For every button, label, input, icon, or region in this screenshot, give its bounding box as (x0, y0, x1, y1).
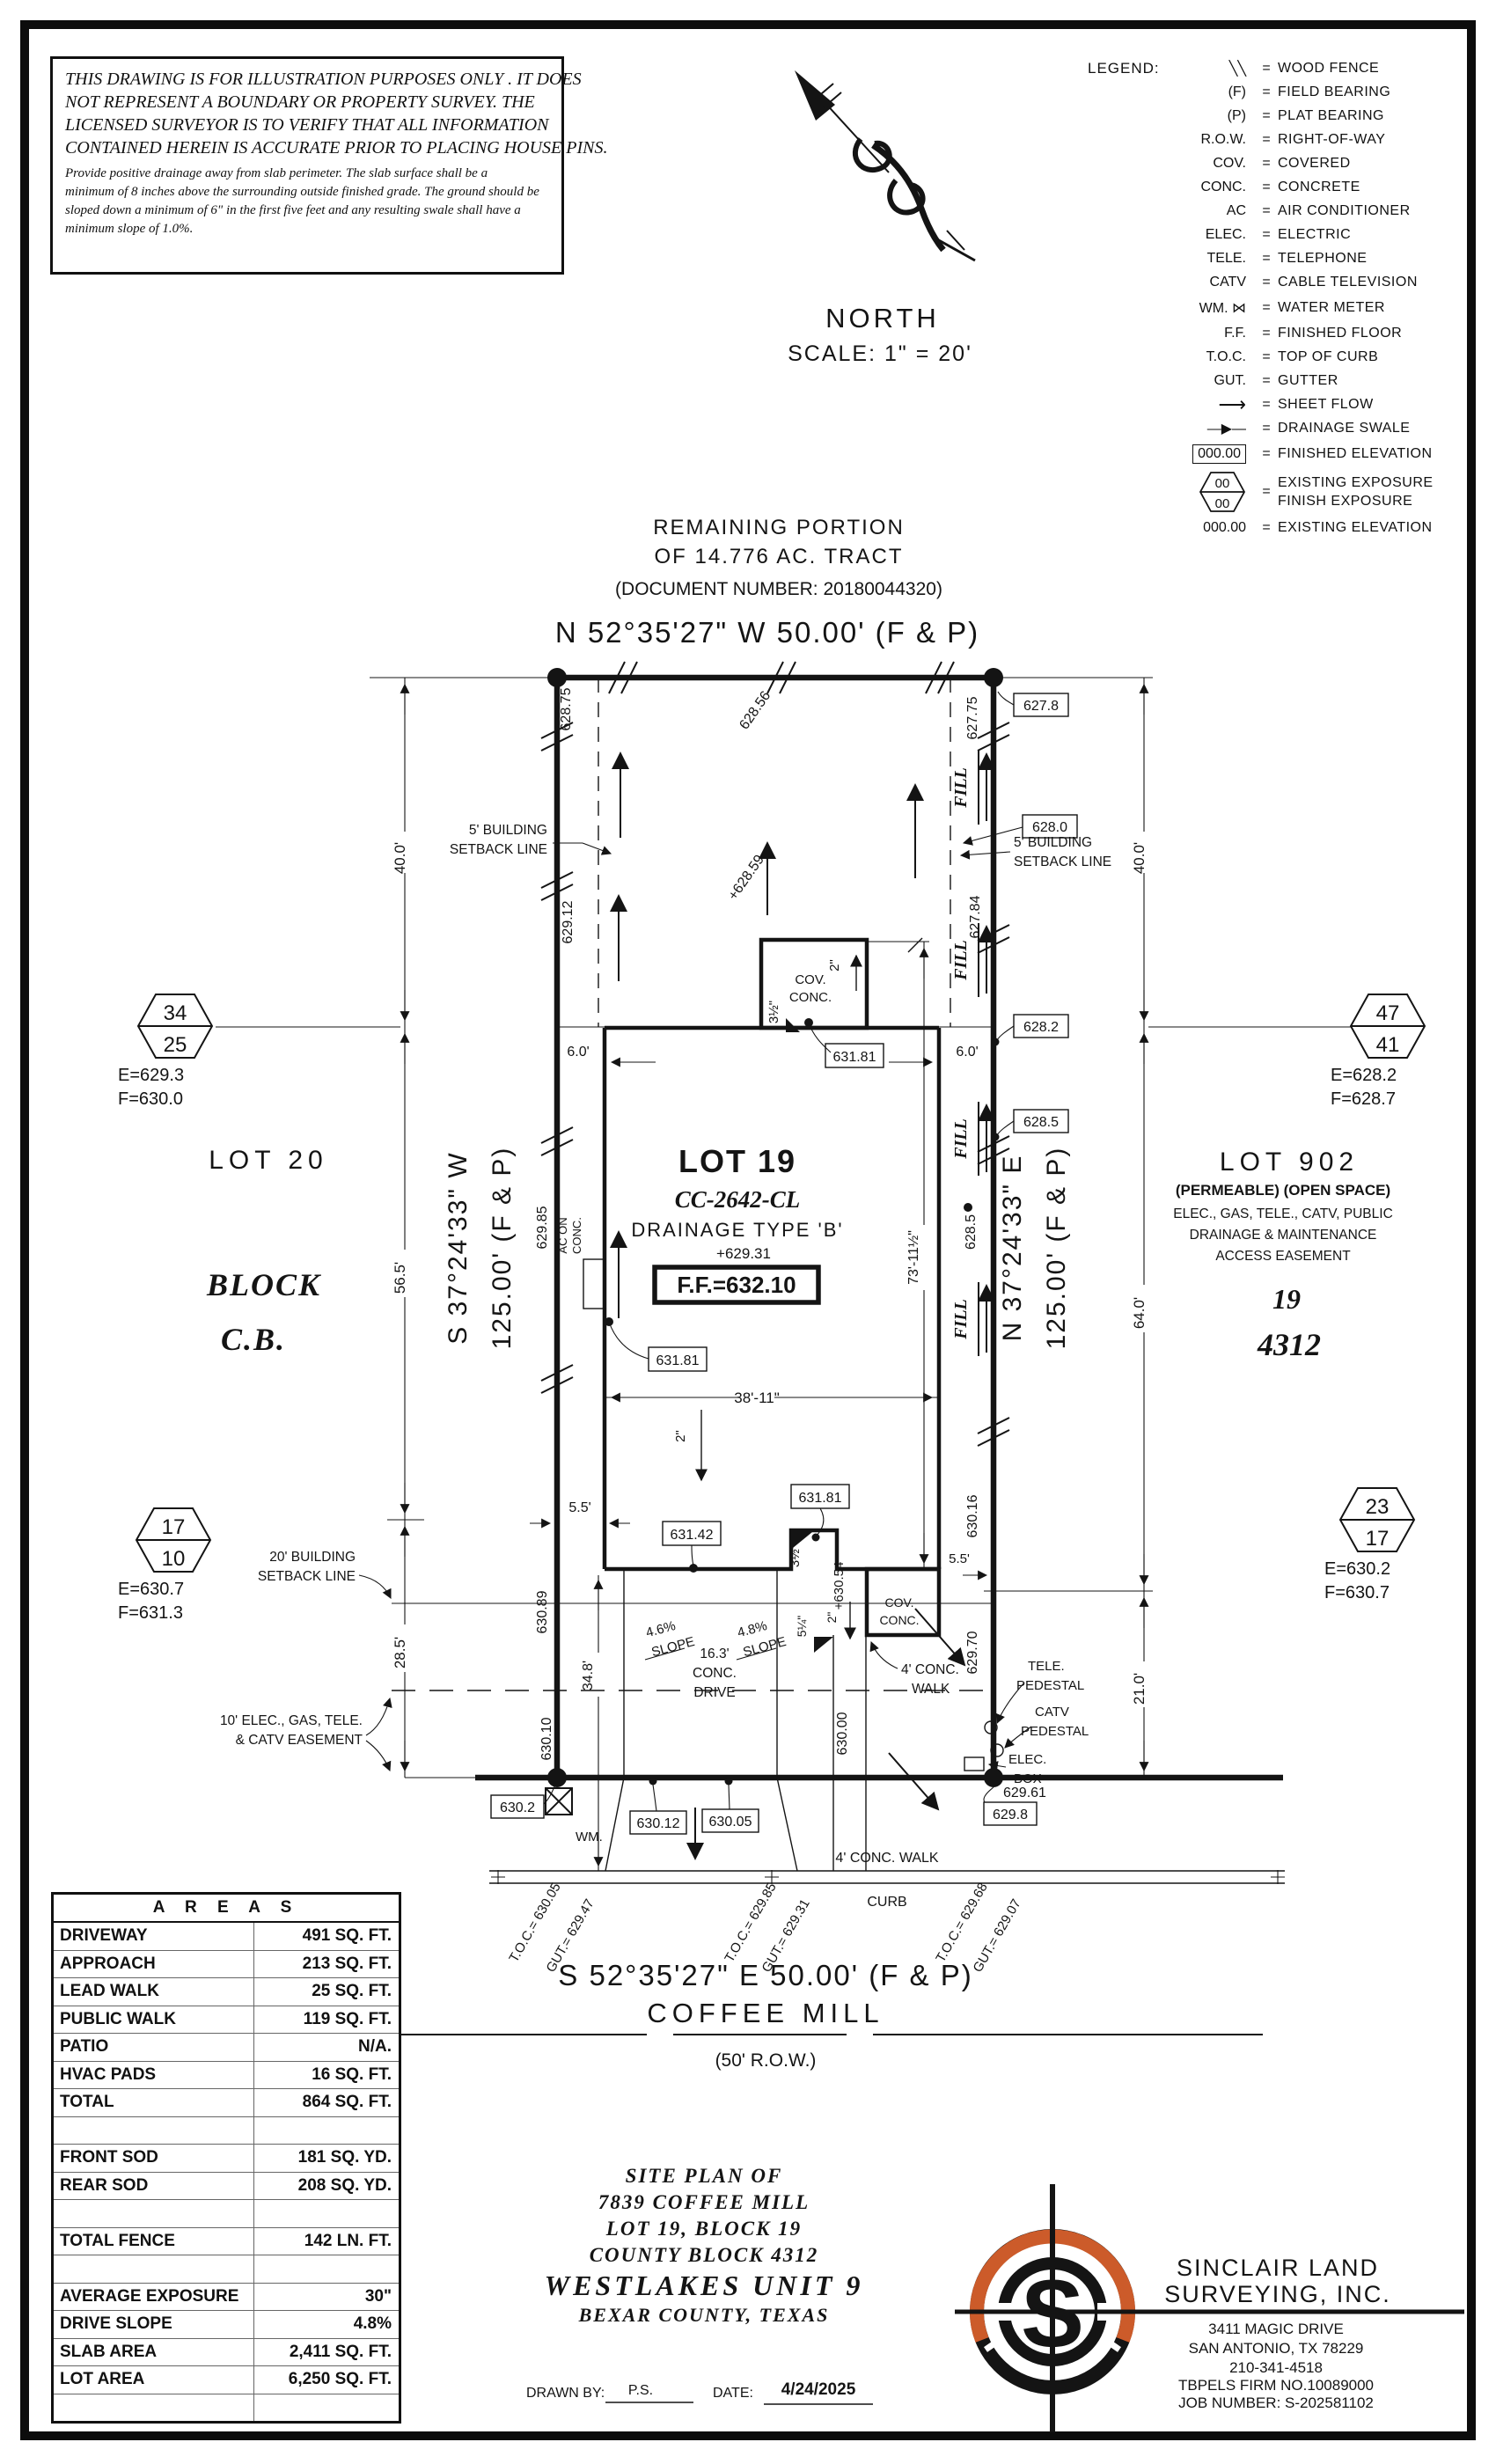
setback5-right-line2: SETBACK LINE (1014, 854, 1111, 869)
lot20-label: LOT 20 (209, 1146, 328, 1175)
bearing-west-2: 125.00' (F & P) (488, 1147, 517, 1350)
elev-box-630-12: 630.12 (630, 1778, 686, 1835)
svg-text:F=631.3: F=631.3 (118, 1603, 183, 1623)
legend-sym: CONC. (1081, 180, 1255, 195)
elev-box-631-81-rear: 631.81 (825, 1044, 884, 1067)
ac-label-2: CONC. (570, 1217, 583, 1254)
disclaimer-line: LICENSED SURVEYOR IS TO VERIFY THAT ALL … (65, 114, 551, 136)
cov-conc-front-1: COV. (885, 1595, 914, 1610)
dim-40-left: 40.0' (392, 842, 408, 874)
front-walk-label-1: 4' CONC. (901, 1662, 959, 1677)
dim-55-front: 5.5' (568, 1500, 590, 1515)
drawn-by-label: DRAWN BY: (526, 2386, 605, 2401)
disclaimer-line: NOT REPRESENT A BOUNDARY OR PROPERTY SUR… (65, 91, 551, 114)
equals: = (1255, 446, 1278, 462)
equals: = (1255, 203, 1278, 219)
easement-note-3: ACCESS EASEMENT (1215, 1249, 1351, 1264)
legend-desc: SHEET FLOW (1278, 397, 1478, 413)
elev-630-89: 630.89 (535, 1590, 550, 1633)
legend-sym: T.O.C. (1081, 349, 1255, 365)
svg-text:628.2: 628.2 (1023, 1020, 1059, 1035)
dim-64: 64.0' (1131, 1297, 1148, 1329)
north-label: NORTH (825, 303, 940, 334)
legend-desc: FIELD BEARING (1278, 84, 1478, 100)
elev-630-16: 630.16 (965, 1494, 980, 1537)
table-row: HVAC PADS16 SQ. FT. (54, 2062, 399, 2090)
table-row: DRIVEWAY491 SQ. FT. (54, 1923, 399, 1951)
front-walk-label-2: WALK (912, 1682, 950, 1697)
svg-text:FILL: FILL (951, 1118, 971, 1160)
plan-code: CC-2642-CL (675, 1186, 801, 1213)
table-row: FRONT SOD181 SQ. YD. (54, 2145, 399, 2173)
dim-73: 73'-11½" (906, 942, 924, 1570)
disclaimer-line: CONTAINED HEREIN IS ACCURATE PRIOR TO PL… (65, 136, 551, 159)
exposure-hex-47-41: 47 41 E=628.2 F=628.7 (1331, 994, 1425, 1109)
svg-text:4.8%: 4.8% (736, 1618, 768, 1640)
legend-sym: GUT. (1081, 373, 1255, 389)
table-row: PATION/A. (54, 2034, 399, 2062)
equals: = (1255, 300, 1278, 316)
finished-elevation-icon: 000.00 (1192, 444, 1246, 464)
svg-text:BOX: BOX (1014, 1771, 1042, 1786)
company-phone: 210-341-4518 (1229, 2359, 1323, 2376)
svg-text:TELE.: TELE. (1028, 1659, 1065, 1674)
table-row: REAR SOD208 SQ. YD. (54, 2173, 399, 2201)
table-row: APPROACH213 SQ. FT. (54, 1951, 399, 1979)
bearing-east-2: 125.00' (F & P) (1042, 1147, 1071, 1350)
exposure-hex-34-25: 34 25 E=629.3 F=630.0 (118, 994, 212, 1109)
legend-desc: DRAINAGE SWALE (1278, 421, 1478, 436)
equals: = (1255, 484, 1278, 500)
svg-text:41: 41 (1376, 1033, 1400, 1057)
tract-note-line2: OF 14.776 AC. TRACT (655, 545, 904, 568)
lot902-label: LOT 902 (1220, 1148, 1359, 1177)
title-line1: SITE PLAN OF (626, 2165, 783, 2187)
svg-text:630.12: 630.12 (637, 1816, 680, 1831)
legend-sym: 000.00 (1081, 520, 1255, 536)
legend-desc: CABLE TELEVISION (1278, 275, 1478, 290)
dim-28: 28.5' (392, 1637, 408, 1668)
dim-40-right: 40.0' (1131, 842, 1148, 874)
svg-text:38'-11": 38'-11" (734, 1390, 780, 1406)
svg-text:631.81: 631.81 (799, 1491, 842, 1506)
row-width: (50' R.O.W.) (715, 2050, 817, 2071)
dim-56: 56.5' (392, 1262, 408, 1294)
legend-desc: ELECTRIC (1278, 227, 1478, 243)
dim-21: 21.0' (1131, 1673, 1148, 1705)
svg-text:631.81: 631.81 (833, 1050, 876, 1065)
svg-text:00: 00 (1215, 496, 1230, 511)
table-row (54, 2117, 399, 2145)
company-firm-no: TBPELS FIRM NO.10089000 (1178, 2377, 1374, 2394)
scale-label: SCALE: 1" = 20' (788, 341, 972, 366)
svg-text:25: 25 (164, 1033, 187, 1057)
svg-text:FILL: FILL (951, 1299, 971, 1340)
elev-630-54: +630.54 (832, 1562, 847, 1610)
north-arrow-icon (795, 70, 975, 260)
elev-box-630-05: 630.05 (702, 1778, 759, 1833)
title-line4: COUNTY BLOCK 4312 (590, 2244, 819, 2266)
easement10-line2: & CATV EASEMENT (236, 1733, 363, 1748)
subdivision-name: WESTLAKES UNIT 9 (545, 2270, 864, 2301)
table-row: PUBLIC WALK119 SQ. FT. (54, 2006, 399, 2035)
drainage-note-line: Provide positive drainage away from slab… (65, 165, 551, 183)
svg-text:ELEC.: ELEC. (1008, 1752, 1046, 1767)
drawn-by-value: P.S. (628, 2383, 653, 2398)
drainage-note-line: minimum of 8 inches above the surroundin… (65, 183, 551, 202)
legend-sym: ELEC. (1081, 227, 1255, 243)
water-meter-icon: WM. ⋈ (1081, 299, 1255, 317)
svg-text:PEDESTAL: PEDESTAL (1021, 1724, 1089, 1739)
company-name-2: SURVEYING, INC. (1164, 2281, 1391, 2307)
svg-text:73'-11½": 73'-11½" (906, 1230, 921, 1285)
bearing-east-1: N 37°24'33" E (998, 1155, 1027, 1342)
equals: = (1255, 520, 1278, 536)
permeable-label: (PERMEABLE) (OPEN SPACE) (1176, 1182, 1390, 1199)
drainage-type: DRAINAGE TYPE 'B' (631, 1219, 843, 1241)
elev-627-84: 627.84 (968, 895, 983, 938)
bearing-west-1: S 37°24'33" W (444, 1151, 473, 1344)
elev-628-56: 628.56 (737, 688, 774, 732)
tract-doc-number: (DOCUMENT NUMBER: 20180044320) (615, 579, 942, 599)
elev-628-75: 628.75 (559, 687, 574, 730)
step-2in-house: 2" (673, 1430, 688, 1442)
table-row: LEAD WALK25 SQ. FT. (54, 1978, 399, 2006)
table-row (54, 2255, 399, 2284)
legend-sym: (F) (1081, 84, 1255, 100)
legend-desc: FINISHED FLOOR (1278, 326, 1478, 341)
exposure-hex-23-17: 23 17 E=630.2 F=630.7 (1324, 1488, 1414, 1602)
equals: = (1255, 251, 1278, 267)
company-job-no: JOB NUMBER: S-202581102 (1178, 2394, 1374, 2411)
svg-text:F=630.7: F=630.7 (1324, 1583, 1390, 1602)
svg-text:630.05: 630.05 (709, 1815, 752, 1830)
dim-55-right: 5.5' (949, 1551, 970, 1566)
table-row (54, 2394, 399, 2422)
svg-text:CATV: CATV (1035, 1705, 1069, 1720)
elev-629-12: 629.12 (561, 900, 576, 943)
legend-desc: RIGHT-OF-WAY (1278, 132, 1478, 148)
title-line2: 7839 COFFEE MILL (598, 2191, 810, 2213)
legend-desc: FINISHED ELEVATION (1278, 446, 1478, 462)
easement-note-1: ELEC., GAS, TELE., CATV, PUBLIC (1173, 1206, 1393, 1221)
table-row: LOT AREA6,250 SQ. FT. (54, 2366, 399, 2394)
date-label: DATE: (713, 2386, 753, 2401)
svg-text:FILL: FILL (951, 940, 971, 981)
title-line3: LOT 19, BLOCK 19 (605, 2218, 802, 2240)
legend-desc: PLAT BEARING (1278, 108, 1478, 124)
dim-6-right: 6.0' (956, 1045, 978, 1060)
legend: LEGEND: ╲╲=WOOD FENCE (F)=FIELD BEARING … (1081, 56, 1478, 539)
equals: = (1255, 84, 1278, 100)
step-5q: 5¼" (795, 1616, 809, 1637)
table-row: DRIVE SLOPE4.8% (54, 2311, 399, 2339)
disclaimer-line: THIS DRAWING IS FOR ILLUSTRATION PURPOSE… (65, 68, 551, 91)
legend-desc: EXISTING ELEVATION (1278, 520, 1478, 536)
company-name-1: SINCLAIR LAND (1177, 2255, 1379, 2281)
svg-text:629.8: 629.8 (993, 1808, 1028, 1822)
svg-text:627.8: 627.8 (1023, 699, 1059, 714)
svg-text:E=628.2: E=628.2 (1331, 1066, 1397, 1085)
equals: = (1255, 326, 1278, 341)
drainage-swale-icon: ―▶― (1081, 420, 1255, 437)
curb-label: CURB (867, 1895, 906, 1910)
equals: = (1255, 61, 1278, 77)
svg-text:47: 47 (1376, 1001, 1400, 1025)
site-plan-sheet: NORTH SCALE: 1" = 20' REMAINING PORTION … (0, 0, 1496, 2464)
table-row: SLAB AREA2,411 SQ. FT. (54, 2339, 399, 2367)
areas-title: A R E A S (54, 1895, 399, 1923)
step-35in-front: 3½" (788, 1544, 803, 1567)
legend-desc: WOOD FENCE (1278, 61, 1478, 77)
cov-conc-rear-1: COV. (795, 972, 825, 987)
elev-box-631-42: 631.42 (663, 1522, 721, 1573)
legend-sym: CATV (1081, 275, 1255, 290)
equals: = (1255, 275, 1278, 290)
date-value: 4/24/2025 (781, 2380, 856, 2399)
table-row: TOTAL FENCE142 LN. FT. (54, 2228, 399, 2256)
utility-pedestals: TELE. PEDESTAL CATV PEDESTAL ELEC. BOX (964, 1659, 1089, 1786)
svg-text:628.0: 628.0 (1032, 820, 1067, 835)
pad-elevation: +629.31 (716, 1245, 771, 1262)
legend-title: LEGEND: (1088, 60, 1160, 77)
legend-desc: EXISTING EXPOSURE FINISH EXPOSURE (1278, 473, 1478, 510)
legend-sym: COV. (1081, 156, 1255, 172)
elev-628-5: 628.5 (964, 1214, 979, 1250)
equals: = (1255, 108, 1278, 124)
sheet-flow-icon: ⟶ (1081, 393, 1255, 416)
easement-note-2: DRAINAGE & MAINTENANCE (1190, 1228, 1377, 1243)
water-meter: WM. (546, 1788, 603, 1844)
setback20-line1: 20' BUILDING (269, 1550, 356, 1565)
equals: = (1255, 227, 1278, 243)
street-sidewalk (489, 1870, 1285, 1884)
exposure-hex-icon: 00 00 (1081, 471, 1255, 513)
legend-sym: AC (1081, 203, 1255, 219)
elev-box-631-81-west: 631.81 (649, 1347, 707, 1371)
elev-627-75: 627.75 (965, 696, 980, 739)
svg-text:34: 34 (164, 1001, 187, 1025)
legend-desc: TELEPHONE (1278, 251, 1478, 267)
elev-box-628-2: 628.2 (992, 1015, 1069, 1046)
legend-sym: TELE. (1081, 251, 1255, 267)
cov-conc-front-2: CONC. (879, 1613, 919, 1627)
step-2in-patio: 2" (827, 959, 842, 972)
svg-text:631.81: 631.81 (656, 1353, 700, 1368)
company-address-2: SAN ANTONIO, TX 78229 (1189, 2340, 1364, 2357)
setback5-left-line2: SETBACK LINE (450, 842, 547, 857)
svg-text:F=630.0: F=630.0 (118, 1089, 183, 1109)
equals: = (1255, 349, 1278, 365)
easement10-line1: 10' ELEC., GAS, TELE. (220, 1713, 363, 1728)
svg-text:631.42: 631.42 (671, 1528, 714, 1543)
lot19-label: LOT 19 (678, 1143, 796, 1179)
county-block-4312: 4312 (1257, 1327, 1321, 1362)
step-2in-porch: 2" (825, 1612, 839, 1624)
elev-630-00: 630.00 (835, 1712, 850, 1755)
svg-text:4.6%: 4.6% (644, 1618, 677, 1640)
finished-floor: F.F.=632.10 (677, 1272, 796, 1298)
legend-desc: AIR CONDITIONER (1278, 203, 1478, 219)
svg-text:PEDESTAL: PEDESTAL (1016, 1678, 1084, 1693)
block-label-2: C.B. (221, 1322, 286, 1357)
svg-text:E=629.3: E=629.3 (118, 1066, 184, 1085)
drainage-note-line: minimum slope of 1.0%. (65, 220, 551, 238)
elev-629-61: 629.61 (1003, 1786, 1046, 1800)
table-row: AVERAGE EXPOSURE30" (54, 2284, 399, 2312)
dim-34: 34.8' (581, 1575, 598, 1871)
bearing-south: S 52°35'27" E 50.00' (F & P) (558, 1959, 972, 1991)
drainage-note-line: sloped down a minimum of 6" in the first… (65, 202, 551, 220)
svg-text:E=630.2: E=630.2 (1324, 1559, 1390, 1579)
svg-text:23: 23 (1366, 1495, 1390, 1519)
elev-629-85: 629.85 (535, 1206, 550, 1249)
elev-629-70: 629.70 (965, 1631, 980, 1674)
legend-sym: F.F. (1081, 326, 1255, 341)
table-row (54, 2200, 399, 2228)
svg-text:17: 17 (1366, 1527, 1390, 1551)
svg-text:E=630.7: E=630.7 (118, 1580, 184, 1599)
disclaimer-note: THIS DRAWING IS FOR ILLUSTRATION PURPOSE… (50, 56, 564, 275)
elev-box-627-8: 627.8 (998, 692, 1068, 716)
bearing-north: N 52°35'27" W 50.00' (F & P) (555, 616, 979, 649)
equals: = (1255, 180, 1278, 195)
drive-dim: 16.3' (700, 1646, 729, 1661)
ac-label-1: AC ON (556, 1217, 569, 1253)
logo-s: S (1021, 2260, 1084, 2366)
legend-desc: WATER METER (1278, 300, 1478, 316)
svg-text:34.8': 34.8' (581, 1661, 596, 1690)
equals: = (1255, 421, 1278, 436)
elev-630-10: 630.10 (539, 1717, 554, 1760)
elev-628-59: +628.59 (726, 853, 767, 904)
block-label-1: BLOCK (206, 1267, 322, 1302)
table-row: TOTAL864 SQ. FT. (54, 2089, 399, 2117)
exposure-hex-17-10: 17 10 E=630.7 F=631.3 (118, 1508, 210, 1623)
legend-desc: COVERED (1278, 156, 1478, 172)
public-walk-label: 4' CONC. WALK (835, 1851, 938, 1866)
equals: = (1255, 156, 1278, 172)
elev-box-628-5: 628.5 (992, 1110, 1069, 1141)
drive-label-1: CONC. (693, 1666, 737, 1681)
drive-label-2: DRIVE (693, 1685, 735, 1700)
svg-text:10: 10 (162, 1547, 186, 1571)
legend-sym: R.O.W. (1081, 132, 1255, 148)
legend-sym: (P) (1081, 108, 1255, 124)
step-35in-rear: 3½" (766, 1001, 781, 1023)
svg-text:628.5: 628.5 (1023, 1115, 1059, 1130)
dim-38: 38'-11" (605, 1390, 939, 1406)
svg-text:17: 17 (162, 1515, 186, 1539)
block-19: 19 (1272, 1283, 1301, 1315)
company-address-1: 3411 MAGIC DRIVE (1208, 2321, 1344, 2337)
legend-desc: GUTTER (1278, 373, 1478, 389)
svg-text:F=628.7: F=628.7 (1331, 1089, 1396, 1109)
equals: = (1255, 373, 1278, 389)
county-name: BEXAR COUNTY, TEXAS (578, 2304, 830, 2326)
svg-text:630.2: 630.2 (500, 1800, 535, 1815)
setback20-line2: SETBACK LINE (258, 1569, 356, 1584)
equals: = (1255, 132, 1278, 148)
svg-text:FILL: FILL (951, 767, 971, 809)
dim-6-left: 6.0' (567, 1045, 589, 1060)
cov-conc-rear-2: CONC. (789, 990, 832, 1005)
legend-desc: TOP OF CURB (1278, 349, 1478, 365)
svg-text:WM.: WM. (576, 1830, 603, 1844)
svg-text:00: 00 (1215, 476, 1230, 491)
areas-table: A R E A S DRIVEWAY491 SQ. FT. APPROACH21… (51, 1892, 401, 2424)
tract-note-line1: REMAINING PORTION (653, 516, 905, 539)
equals: = (1255, 397, 1278, 413)
setback5-left-line1: 5' BUILDING (469, 823, 547, 838)
legend-desc: CONCRETE (1278, 180, 1478, 195)
street-name: COFFEE MILL (647, 1998, 884, 2028)
